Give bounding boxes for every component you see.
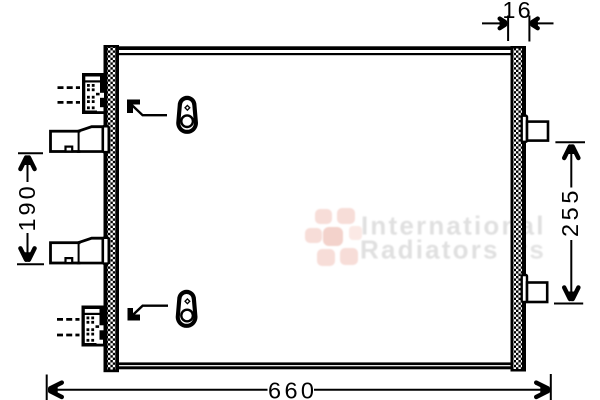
- svg-text:190: 190: [14, 183, 40, 231]
- svg-text:16: 16: [502, 0, 533, 23]
- svg-text:255: 255: [557, 187, 583, 237]
- svg-text:660: 660: [268, 378, 317, 400]
- svg-text:Radiators: Radiators: [360, 235, 500, 265]
